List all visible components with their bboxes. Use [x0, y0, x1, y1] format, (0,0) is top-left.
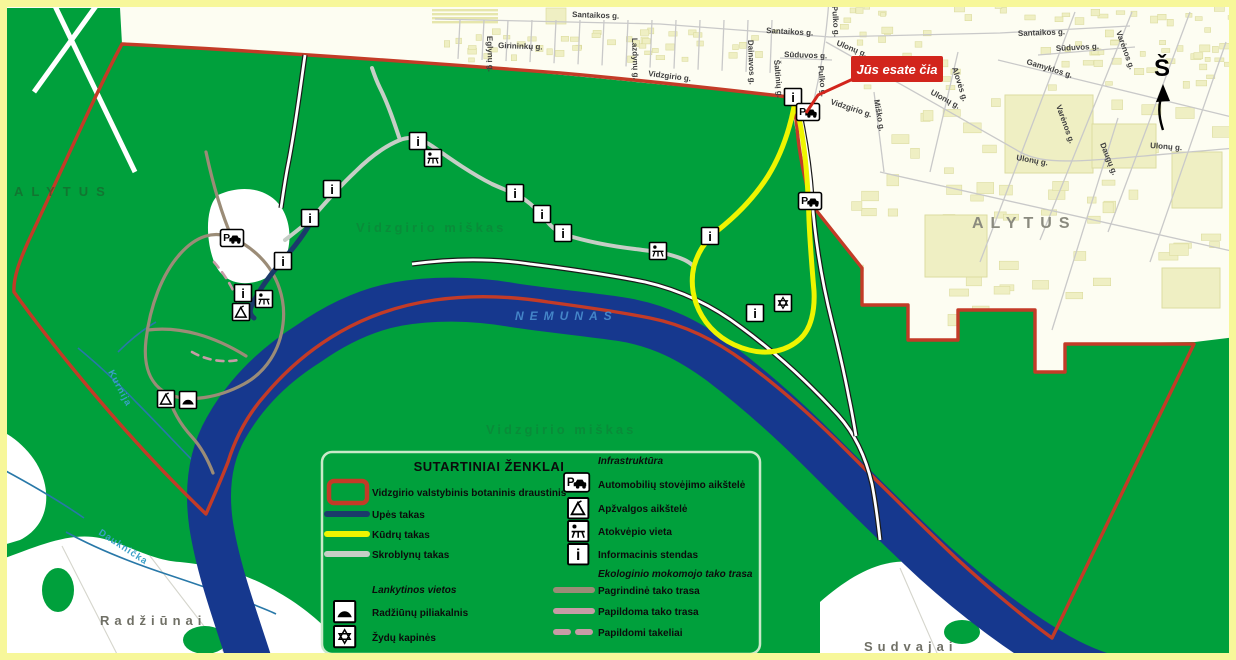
building: [1102, 180, 1115, 185]
building: [642, 39, 650, 44]
viewpoint-icon: [158, 391, 175, 408]
building: [1205, 57, 1210, 61]
building: [1033, 281, 1049, 290]
building: [1176, 108, 1194, 119]
rest-area-icon: [568, 521, 588, 541]
building: [879, 36, 886, 42]
building: [1167, 19, 1173, 26]
building: [1212, 46, 1218, 52]
river-label-nemunas: NEMUNAS: [515, 309, 618, 323]
info-stand-icon: [235, 285, 252, 302]
legend: SUTARTINIAI ŽENKLAI Vidzgirio valstybini…: [322, 452, 760, 654]
village-label-radziunai: Radžiūnai: [100, 613, 206, 628]
building: [476, 35, 481, 41]
building: [1094, 60, 1103, 66]
info-stand-icon: [324, 181, 341, 198]
building: [983, 145, 997, 153]
building: [950, 289, 969, 296]
legend-item-label: Papildoma tako trasa: [598, 607, 699, 618]
jewish-cemetery-icon: [334, 626, 355, 647]
building: [1105, 30, 1113, 37]
building: [1066, 292, 1083, 299]
village-label-sudvajai: Sudvajai: [864, 639, 957, 654]
legend-section-header: Infrastruktūra: [598, 456, 663, 467]
hillfort-icon: [334, 601, 355, 622]
legend-item-label: Kūdrų takas: [372, 530, 430, 541]
street-label: Santaikos g.: [572, 10, 619, 21]
building: [740, 42, 747, 48]
building: [1195, 17, 1202, 21]
building: [856, 8, 863, 14]
building: [1194, 53, 1203, 59]
building: [881, 13, 886, 17]
building: [862, 191, 879, 201]
building: [1134, 68, 1143, 74]
building: [1160, 40, 1166, 44]
legend-item-label: Atokvėpio vieta: [598, 527, 672, 538]
street-label: Sūduvos g.: [784, 50, 827, 60]
building: [943, 77, 951, 82]
building: [1212, 127, 1230, 138]
building: [555, 50, 564, 56]
building: [652, 48, 658, 52]
legend-item-label: Informacinis stendas: [598, 550, 698, 561]
building: [1205, 28, 1211, 33]
building: [1196, 80, 1207, 86]
building: [1129, 190, 1138, 199]
building: [444, 41, 449, 48]
parking-icon: [564, 473, 589, 492]
hillfort-icon: [180, 392, 197, 409]
info-stand-icon: [275, 253, 292, 270]
building: [469, 46, 477, 50]
building: [864, 85, 871, 89]
street-label: Lazdynų g.: [630, 38, 640, 80]
legend-title: SUTARTINIAI ŽENKLAI: [414, 459, 565, 474]
building: [1158, 14, 1167, 20]
legend-item-label: Radžiūnų piliakalnis: [372, 608, 469, 619]
legend-item-label: Skroblynų takas: [372, 550, 450, 561]
legend-item-label: Žydų kapinės: [372, 631, 436, 644]
building: [892, 135, 909, 144]
building: [1170, 244, 1189, 256]
building: [1200, 64, 1207, 70]
building: [1093, 278, 1110, 286]
building: [1116, 11, 1125, 15]
rest-area-icon: [650, 243, 667, 260]
building: [697, 41, 704, 46]
building: [923, 111, 933, 121]
legend-item-label: Vidzgirio valstybinis botaninis draustin…: [372, 488, 567, 499]
building: [1098, 50, 1104, 54]
reserve-map: i P: [0, 0, 1236, 660]
building: [1142, 105, 1161, 115]
building: [1106, 82, 1113, 86]
info-stand-icon: [534, 206, 551, 223]
building: [729, 53, 737, 59]
building: [492, 29, 500, 35]
building: [1112, 100, 1123, 110]
street-label: Dainavos g.: [746, 40, 757, 85]
legend-section-header: Lankytinos vietos: [372, 585, 457, 596]
info-stand-icon: [555, 225, 572, 242]
info-stand-icon: [747, 305, 764, 322]
building: [1177, 46, 1183, 52]
rest-area-icon: [256, 291, 273, 308]
building: [994, 286, 1010, 294]
building: [852, 202, 862, 211]
building: [1062, 13, 1070, 17]
viewpoint-icon: [233, 304, 250, 321]
building: [1103, 202, 1113, 213]
jewish-cemetery-icon: [775, 295, 792, 312]
building: [1041, 47, 1051, 54]
building: [693, 33, 702, 38]
building: [1062, 61, 1069, 67]
building: [592, 33, 600, 37]
building: [469, 58, 475, 62]
forest-label: Vidzgirio miškas: [356, 220, 506, 235]
building: [1055, 17, 1063, 22]
building: [608, 40, 616, 45]
building: [1048, 85, 1056, 91]
street-label: Girininkų g.: [498, 41, 543, 52]
info-stand-icon: [302, 210, 319, 227]
city-label-alytus: ALYTUS: [972, 215, 1077, 232]
building: [1183, 81, 1189, 88]
viewpoint-icon: [568, 498, 588, 518]
building: [882, 27, 893, 33]
street-label: Eglynų g.: [485, 36, 495, 72]
building: [850, 8, 855, 13]
building: [640, 30, 649, 36]
building: [1151, 16, 1158, 23]
building: [965, 15, 972, 21]
building: [656, 56, 665, 60]
building: [1025, 15, 1035, 20]
building: [561, 36, 568, 41]
rest-area-icon: [425, 150, 442, 167]
building: [888, 209, 898, 216]
street-label: Santaikos g.: [1018, 27, 1065, 38]
legend-item-label: Automobilių stovėjimo aikštelė: [598, 480, 746, 491]
building: [844, 18, 851, 23]
info-stand-icon: [702, 228, 719, 245]
building: [977, 183, 994, 194]
forest-label: Vidzgirio miškas: [486, 422, 636, 437]
info-stand-icon: [568, 544, 588, 564]
legend-item-label: Apžvalgos aikštelė: [598, 504, 688, 515]
building: [1091, 9, 1100, 16]
building: [1201, 234, 1221, 240]
building: [528, 37, 536, 41]
building: [1083, 61, 1093, 66]
building: [944, 168, 953, 174]
building: [733, 45, 739, 50]
compass-north-label: Š: [1154, 54, 1170, 82]
building: [1075, 18, 1084, 25]
parking-icon: [799, 193, 822, 210]
building: [682, 57, 688, 61]
reserve-map-page: i P: [0, 0, 1236, 660]
info-stand-icon: [410, 133, 427, 150]
building: [915, 42, 922, 48]
legend-item-label: Papildomi takeliai: [598, 628, 683, 639]
you-are-here-label: Jūs esate čia: [857, 62, 938, 77]
parking-icon: [221, 230, 244, 247]
building: [862, 208, 877, 216]
legend-item-label: Pagrindinė tako trasa: [598, 586, 700, 597]
building: [666, 44, 675, 50]
building: [999, 261, 1018, 269]
building: [1140, 51, 1145, 56]
building: [857, 40, 863, 45]
info-stand-icon: [507, 185, 524, 202]
building: [1162, 49, 1170, 53]
legend-section-header: Ekologinio mokomojo tako trasa: [598, 569, 753, 580]
city-label-alytus-west: ALYTUS: [14, 184, 113, 199]
legend-item-label: Upės takas: [372, 510, 425, 521]
building: [991, 99, 1000, 107]
building: [1200, 45, 1210, 52]
building: [570, 37, 578, 41]
building: [547, 49, 552, 55]
building: [971, 195, 984, 201]
building: [511, 55, 516, 61]
building: [911, 148, 920, 158]
building: [573, 46, 582, 51]
